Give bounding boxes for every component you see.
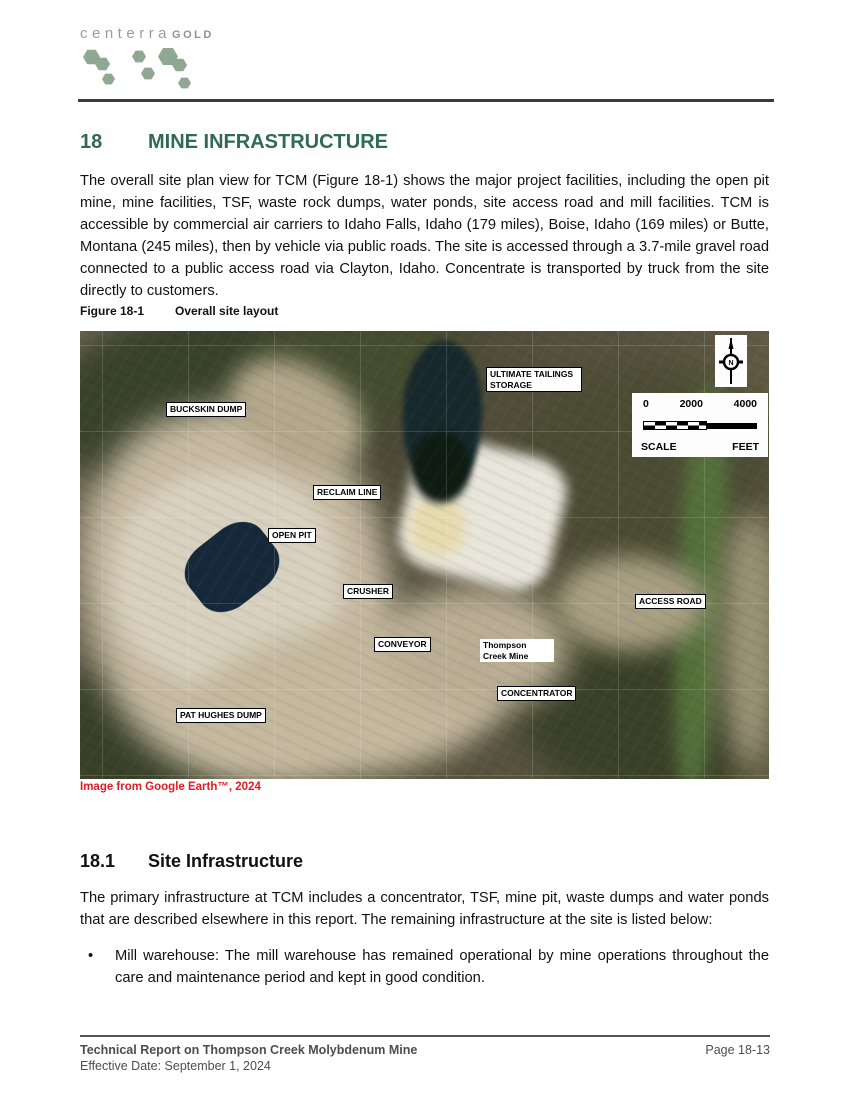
map-label: Thompson Creek Mine: [480, 639, 554, 662]
scale-tick: 0: [643, 398, 649, 410]
map-label: OPEN PIT: [268, 528, 316, 543]
header-divider: [78, 99, 774, 102]
intro-paragraph: The overall site plan view for TCM (Figu…: [80, 170, 769, 302]
bullet-text: Mill warehouse: The mill warehouse has r…: [115, 945, 769, 989]
compass-icon: N: [717, 337, 745, 385]
hexagon-icon: [132, 50, 146, 63]
scale-words: SCALE FEET: [641, 441, 759, 453]
map-label: ACCESS ROAD: [635, 594, 706, 609]
hexagon-icon: [178, 77, 191, 89]
map-label: CONVEYOR: [374, 637, 431, 652]
section-number: 18: [80, 131, 148, 154]
north-arrow: N: [715, 335, 747, 387]
section-title: MINE INFRASTRUCTURE: [148, 131, 388, 154]
subsection-number: 18.1: [80, 851, 148, 872]
hexagon-icon: [102, 73, 115, 85]
image-credit: Image from Google Earth™, 2024: [80, 781, 261, 793]
scale-label: SCALE: [641, 441, 677, 453]
report-page: centerra GOLD 18 MINE INFRASTRUCTURE The…: [0, 0, 849, 1100]
scale-bar-solid: [707, 423, 757, 429]
figure-label: Figure 18-1: [80, 304, 175, 318]
map-label: CRUSHER: [343, 584, 393, 599]
footer-page-number: Page 18-13: [705, 1042, 770, 1058]
footer-effective-date: Effective Date: September 1, 2024: [80, 1058, 417, 1074]
site-map: BUCKSKIN DUMPULTIMATE TAILINGS STORAGERE…: [80, 331, 769, 779]
map-label: BUCKSKIN DUMP: [166, 402, 246, 417]
hexagon-icon: [141, 67, 155, 80]
map-label: PAT HUGHES DUMP: [176, 708, 266, 723]
page-footer: Technical Report on Thompson Creek Molyb…: [80, 1035, 770, 1074]
footer-report-title: Technical Report on Thompson Creek Molyb…: [80, 1042, 417, 1058]
map-label: RECLAIM LINE: [313, 485, 381, 500]
logo-brand-text: centerra: [80, 25, 171, 42]
logo-wordmark: centerra GOLD: [80, 25, 300, 42]
centerra-gold-logo: centerra GOLD: [80, 25, 300, 93]
scale-bar-checker: [643, 421, 707, 430]
list-item: • Mill warehouse: The mill warehouse has…: [80, 945, 769, 989]
footer-left: Technical Report on Thompson Creek Molyb…: [80, 1042, 417, 1074]
scale-bar-graphic: [643, 421, 757, 431]
logo-brand-suffix-text: GOLD: [172, 29, 214, 41]
scale-ticks: 020004000: [641, 398, 759, 410]
figure-title: Overall site layout: [175, 304, 278, 318]
subsection-title: Site Infrastructure: [148, 851, 303, 872]
scale-tick: 4000: [734, 398, 757, 410]
subsection-heading: 18.1 Site Infrastructure: [80, 851, 769, 872]
scale-unit-label: FEET: [732, 441, 759, 453]
bullet-marker: •: [80, 945, 115, 989]
scale-tick: 2000: [680, 398, 703, 410]
infrastructure-paragraph: The primary infrastructure at TCM includ…: [80, 887, 769, 931]
north-letter: N: [728, 360, 733, 367]
map-label: CONCENTRATOR: [497, 686, 576, 701]
scale-bar: 020004000 SCALE FEET: [632, 393, 768, 457]
figure-caption: Figure 18-1 Overall site layout: [80, 304, 769, 318]
map-label: ULTIMATE TAILINGS STORAGE: [486, 367, 582, 392]
logo-hexagons-icon: [80, 49, 210, 93]
section-heading: 18 MINE INFRASTRUCTURE: [80, 131, 769, 154]
